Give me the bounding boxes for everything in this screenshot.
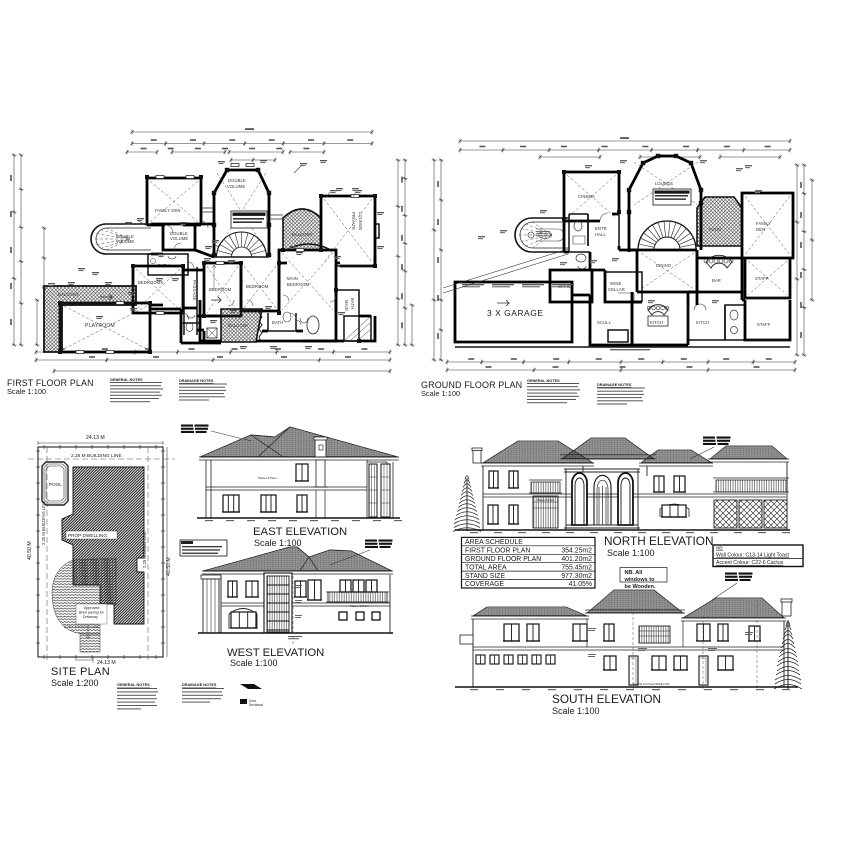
svg-text:977.30m2: 977.30m2 xyxy=(561,573,592,580)
svg-text:GENERAL NOTES: GENERAL NOTES xyxy=(527,379,560,383)
svg-text:755.45m2: 755.45m2 xyxy=(561,564,592,571)
svg-text:BEDROOM: BEDROOM xyxy=(287,282,310,287)
svg-text:BEDROOM: BEDROOM xyxy=(209,287,232,292)
svg-text:Scale 1:200: Scale 1:200 xyxy=(51,678,99,688)
svg-text:LOUNGE: LOUNGE xyxy=(655,181,673,186)
svg-text:Scale 1:100: Scale 1:100 xyxy=(552,706,600,716)
svg-text:CELLAR: CELLAR xyxy=(608,287,625,292)
svg-text:NORTH ELEVATION: NORTH ELEVATION xyxy=(604,534,713,548)
svg-text:HALL: HALL xyxy=(595,232,606,237)
svg-text:SCULL: SCULL xyxy=(597,320,612,325)
svg-text:6.75 X 5 M BLDG LINE: 6.75 X 5 M BLDG LINE xyxy=(64,625,100,629)
svg-text:DRAINAGE NOTES: DRAINAGE NOTES xyxy=(179,379,214,383)
svg-text:STAFF: STAFF xyxy=(755,276,769,281)
svg-text:SITE PLAN: SITE PLAN xyxy=(51,666,110,678)
svg-text:LOUNGE: LOUNGE xyxy=(358,212,363,230)
svg-text:FIRST FLOOR PLAN: FIRST FLOOR PLAN xyxy=(465,548,530,555)
svg-text:Plaster & Paint: Plaster & Paint xyxy=(258,476,277,480)
svg-text:POOL: POOL xyxy=(49,482,62,487)
svg-text:BEDROOM: BEDROOM xyxy=(246,284,269,289)
svg-text:DRAINAGE NOTES: DRAINAGE NOTES xyxy=(597,383,632,387)
svg-text:NB. All: NB. All xyxy=(625,570,643,576)
svg-text:TOTAL AREA: TOTAL AREA xyxy=(465,564,507,571)
svg-text:2.25 M BUILDING LINE: 2.25 M BUILDING LINE xyxy=(71,453,122,459)
svg-text:COVERAGE: COVERAGE xyxy=(465,581,504,588)
svg-text:PRIVATE: PRIVATE xyxy=(351,212,356,230)
svg-text:MAIN: MAIN xyxy=(344,300,349,311)
svg-text:KITCH: KITCH xyxy=(696,320,709,325)
svg-text:VOLUME: VOLUME xyxy=(116,239,134,244)
svg-text:BALCONY: BALCONY xyxy=(292,232,313,237)
svg-text:be Wooden.: be Wooden. xyxy=(625,584,657,590)
svg-text:STAFF: STAFF xyxy=(757,322,771,327)
svg-text:Wall Colour: C13-14 Light Toas: Wall Colour: C13-14 Light Toast xyxy=(716,553,790,559)
svg-text:Accent Colour: C22-6 Cactus: Accent Colour: C22-6 Cactus xyxy=(716,560,784,566)
svg-text:CINEMA: CINEMA xyxy=(578,194,595,199)
svg-text:2.25 M BUILDING LINE: 2.25 M BUILDING LINE xyxy=(41,501,46,545)
svg-text:WINE: WINE xyxy=(610,281,621,286)
svg-text:Scale 1:100: Scale 1:100 xyxy=(607,548,655,558)
svg-text:DRAINAGE NOTES: DRAINAGE NOTES xyxy=(182,683,217,687)
svg-text:MAIN: MAIN xyxy=(287,276,298,281)
svg-text:GENERAL NOTES: GENERAL NOTES xyxy=(110,378,143,382)
svg-text:Scale 1:100: Scale 1:100 xyxy=(421,389,460,398)
svg-text:BALCONY: BALCONY xyxy=(228,323,249,328)
svg-text:AREA SCHEDULE: AREA SCHEDULE xyxy=(465,539,523,546)
svg-text:Plaster & Paint: Plaster & Paint xyxy=(537,498,554,502)
svg-text:PROP DWELLING: PROP DWELLING xyxy=(68,533,107,538)
svg-text:Scale 1:100: Scale 1:100 xyxy=(7,387,46,396)
svg-text:Brick paving for: Brick paving for xyxy=(79,611,105,615)
svg-text:DEN: DEN xyxy=(756,227,765,232)
svg-text:VOLUME: VOLUME xyxy=(227,184,245,189)
svg-text:Scale 1:100: Scale 1:100 xyxy=(254,538,302,548)
svg-text:EAST ELEVATION: EAST ELEVATION xyxy=(253,526,347,538)
svg-text:GENERAL NOTES: GENERAL NOTES xyxy=(117,683,150,687)
svg-text:NB:: NB: xyxy=(716,546,723,551)
svg-text:GROUND FLOOR PLAN: GROUND FLOOR PLAN xyxy=(465,556,541,563)
svg-text:KITCH: KITCH xyxy=(650,320,663,325)
svg-text:Natural Grd Town BGNL1700: Natural Grd Town BGNL1700 xyxy=(633,682,670,686)
svg-text:BATH: BATH xyxy=(350,298,355,309)
svg-text:BAR: BAR xyxy=(712,278,721,283)
svg-text:VOLUME: VOLUME xyxy=(170,236,188,241)
svg-text:Driveway: Driveway xyxy=(83,615,98,619)
svg-text:40.50 M: 40.50 M xyxy=(27,541,33,560)
svg-text:BALCONY: BALCONY xyxy=(58,292,79,297)
svg-text:STAND SIZE: STAND SIZE xyxy=(465,573,505,580)
svg-text:Approved: Approved xyxy=(84,606,99,610)
svg-text:DOUBLE: DOUBLE xyxy=(228,178,246,183)
svg-text:3 X GARAGE: 3 X GARAGE xyxy=(487,308,544,318)
svg-text:BATH: BATH xyxy=(272,320,283,325)
svg-text:Sectional: Sectional xyxy=(249,703,263,707)
svg-text:FAMILY DEN: FAMILY DEN xyxy=(155,208,181,213)
svg-text:DINING: DINING xyxy=(656,263,671,268)
svg-text:Plaster & Paint: Plaster & Paint xyxy=(350,604,369,608)
svg-text:PLAYROOM: PLAYROOM xyxy=(85,323,115,329)
svg-text:PATIO: PATIO xyxy=(709,227,722,232)
svg-text:SOUTH ELEVATION: SOUTH ELEVATION xyxy=(552,692,661,706)
svg-text:401.20m2: 401.20m2 xyxy=(561,556,592,563)
svg-text:FAMILY: FAMILY xyxy=(756,221,771,226)
svg-text:PASSAGE: PASSAGE xyxy=(192,280,197,301)
svg-text:windows to: windows to xyxy=(624,577,656,583)
svg-text:354.25m2: 354.25m2 xyxy=(561,548,592,555)
svg-text:Scale 1:100: Scale 1:100 xyxy=(230,658,278,668)
svg-text:ENTR: ENTR xyxy=(595,226,607,231)
svg-text:24.13 M: 24.13 M xyxy=(86,435,105,441)
svg-text:41.05%: 41.05% xyxy=(569,581,592,588)
